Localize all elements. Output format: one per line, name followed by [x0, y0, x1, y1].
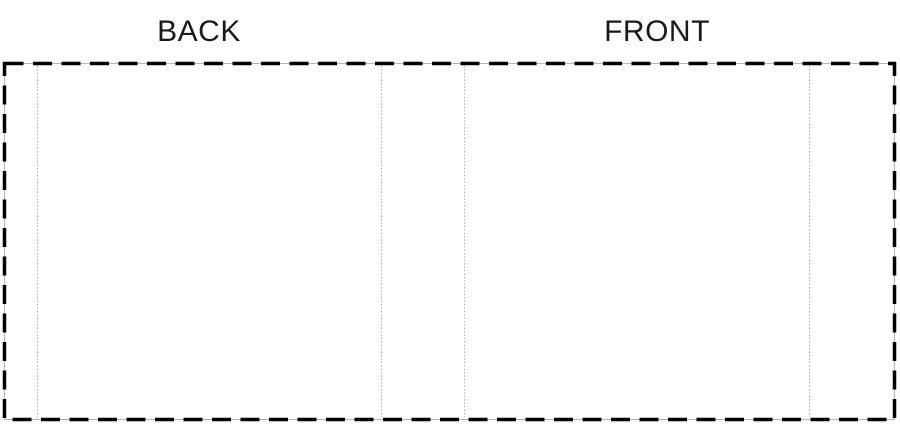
trim-line: [5, 64, 895, 420]
cut-line-border: [5, 64, 895, 420]
template-outline: [0, 0, 900, 437]
jacket-template-canvas: BACK FRONT: [0, 0, 900, 437]
